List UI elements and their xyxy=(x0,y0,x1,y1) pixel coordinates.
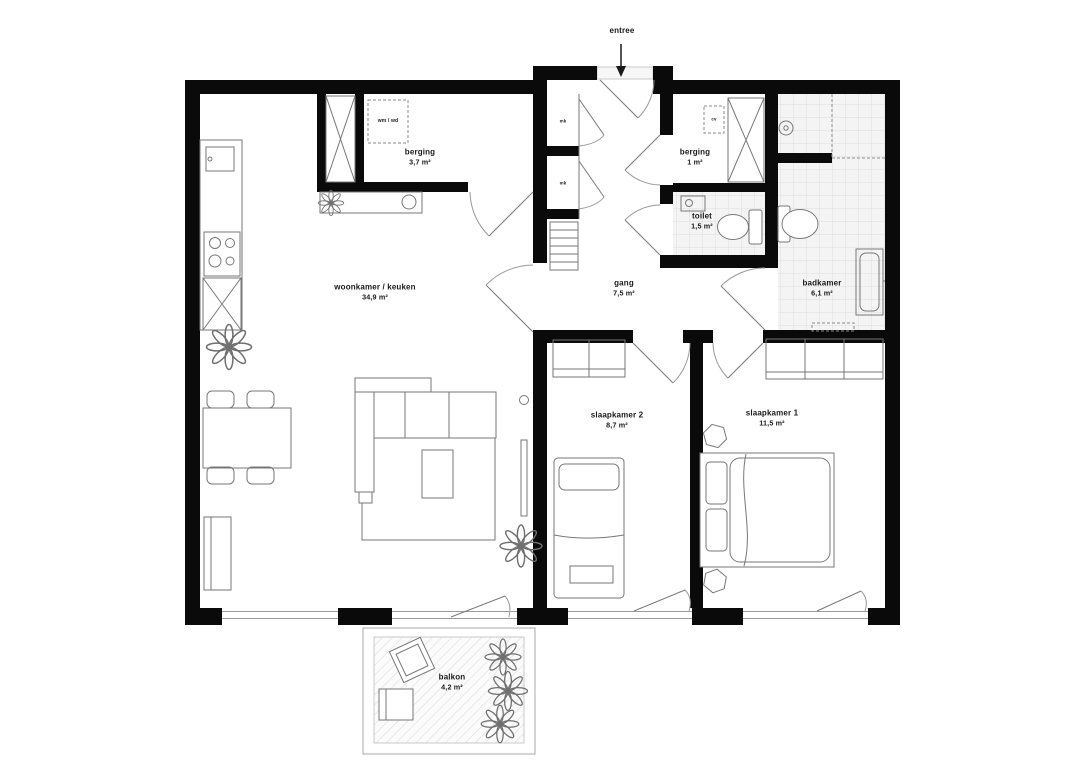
room-label-toilet: toilet 1,5 m² xyxy=(691,211,713,230)
meterkast-label-2: mk xyxy=(560,180,567,185)
washer-dryer-label: wm / wd xyxy=(378,118,399,124)
pouf xyxy=(703,424,726,447)
window xyxy=(743,612,868,619)
room-name: berging xyxy=(680,147,710,157)
floor-plan-drawing xyxy=(0,0,1092,772)
annotation-text: wm / wd xyxy=(378,118,399,124)
entree-text: entree xyxy=(610,26,635,36)
chair xyxy=(247,391,274,408)
wardrobe xyxy=(766,339,883,379)
closet-door-arc xyxy=(579,197,604,209)
window-door-leaf xyxy=(634,590,685,611)
room-area: 3,7 m² xyxy=(409,158,431,167)
room-area: 7,5 m² xyxy=(613,289,635,298)
living-room-furniture xyxy=(203,378,542,590)
room-label-gang: gang 7,5 m² xyxy=(613,278,635,297)
small-storage-door-leaf xyxy=(625,135,660,170)
room-label-woonkamer: woonkamer / keuken 34,9 m² xyxy=(334,282,415,301)
room-area: 34,9 m² xyxy=(362,293,388,302)
bedroom1-door-leaf xyxy=(728,343,763,378)
closet-door-leaf xyxy=(579,161,604,197)
bedroom1-door-arc xyxy=(713,343,728,378)
room-label-berging-groot: berging 3,7 m² xyxy=(405,147,435,166)
small-storage-door-arc xyxy=(625,170,660,185)
entrance-door-arc xyxy=(638,80,654,118)
base-cabinet xyxy=(203,278,241,330)
stove-icon xyxy=(204,232,240,276)
floor-plan: entree woonkamer / keuken 34,9 m² bergin… xyxy=(0,0,1092,772)
balcony-door-leaf xyxy=(451,596,505,617)
room-label-berging-klein: berging 1 m² xyxy=(680,147,710,166)
room-name: woonkamer / keuken xyxy=(334,282,415,292)
toilet-door-arc xyxy=(625,205,660,220)
single-bed xyxy=(554,458,624,598)
chair xyxy=(207,391,234,408)
wardrobe xyxy=(728,98,764,182)
room-area: 1 m² xyxy=(687,158,702,167)
room-area: 6,1 m² xyxy=(811,289,833,298)
room-label-slaapkamer1: slaapkamer 1 11,5 m² xyxy=(746,408,799,427)
window xyxy=(568,612,692,619)
sideboard xyxy=(204,517,231,590)
double-bed xyxy=(700,453,834,567)
livingroom-door-arc xyxy=(486,265,533,285)
room-name: berging xyxy=(405,147,435,157)
livingroom-door-leaf xyxy=(486,285,533,332)
bedroom2-door-leaf xyxy=(633,343,673,383)
plant-icon xyxy=(207,325,252,370)
annotation-text: mk xyxy=(560,118,567,123)
plant-icon xyxy=(318,190,344,216)
wardrobe xyxy=(326,96,355,182)
kitchen xyxy=(200,140,422,370)
balcony-table xyxy=(379,689,413,720)
room-name: slaapkamer 1 xyxy=(746,408,799,418)
bathroom-door-leaf xyxy=(721,286,765,330)
coffee-table xyxy=(422,450,453,498)
annotation-text: cv xyxy=(711,116,716,121)
room-area: 1,5 m² xyxy=(691,222,713,231)
window-door-leaf xyxy=(817,591,861,611)
room-area: 8,7 m² xyxy=(606,421,628,430)
wardrobe xyxy=(553,340,625,377)
entrance-doorway xyxy=(597,67,653,79)
dining-table xyxy=(203,408,291,468)
toilet-door-leaf xyxy=(625,220,660,255)
room-label-badkamer: badkamer 6,1 m² xyxy=(803,278,842,297)
dining-set xyxy=(203,391,291,484)
room-name: toilet xyxy=(692,211,712,221)
window xyxy=(222,612,338,619)
meter-closets xyxy=(550,94,604,270)
pouf xyxy=(704,569,727,593)
bedroom2-door-arc xyxy=(673,343,690,383)
room-area: 4,2 m² xyxy=(441,683,463,692)
room-name: balkon xyxy=(439,672,466,682)
window xyxy=(392,612,517,619)
storage-door-arc xyxy=(470,192,489,236)
balcony-door-arc xyxy=(505,596,510,617)
meterkast-label-1: mk xyxy=(560,118,567,123)
radiator xyxy=(550,222,578,270)
closet-door-leaf xyxy=(579,99,604,135)
annotation-text: mk xyxy=(560,180,567,185)
tv xyxy=(520,396,529,517)
room-name: badkamer xyxy=(803,278,842,288)
chair xyxy=(207,467,234,484)
chair xyxy=(247,467,274,484)
room-label-balkon: balkon 4,2 m² xyxy=(439,672,466,691)
closet-door-arc xyxy=(579,135,604,146)
cv-label: cv xyxy=(711,116,716,121)
room-name: slaapkamer 2 xyxy=(591,410,644,420)
sofa-set xyxy=(355,378,496,540)
room-name: gang xyxy=(614,278,634,288)
window-door-arc xyxy=(861,591,866,611)
window-door-arc xyxy=(685,590,690,611)
storage-door-leaf xyxy=(489,192,533,236)
bedroom2-furniture xyxy=(553,340,625,598)
entree-label: entree xyxy=(610,26,635,36)
entrance-door-leaf xyxy=(600,80,638,118)
sink-icon xyxy=(206,147,234,171)
room-label-slaapkamer2: slaapkamer 2 8,7 m² xyxy=(591,410,644,429)
bathroom-door-arc xyxy=(721,268,765,286)
room-area: 11,5 m² xyxy=(759,419,784,428)
